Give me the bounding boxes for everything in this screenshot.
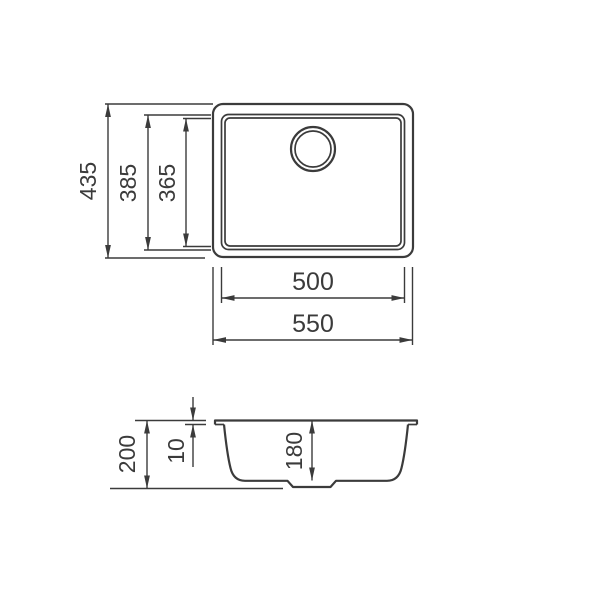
sink-dimension-drawing: 435 385 365 500 550 [0, 0, 600, 600]
technical-drawing-page: 435 385 365 500 550 [0, 0, 600, 600]
dim-label-overall-height: 435 [75, 162, 101, 200]
section-rim-top [215, 421, 417, 425]
section-bowl-profile [224, 425, 408, 488]
bowl-rim-inner-line [225, 118, 401, 246]
dim-label-rim-thickness: 10 [163, 438, 189, 464]
top-view: 435 385 365 500 550 [75, 104, 413, 345]
dim-label-overall-depth: 200 [114, 435, 140, 473]
bowl-rim-outer-line [222, 115, 405, 250]
dim-label-inner-width: 500 [292, 268, 334, 296]
dim-label-bowl-outer-height: 385 [115, 164, 141, 202]
drain-inner-circle [295, 131, 331, 167]
section-view: 200 10 180 [110, 397, 417, 489]
dim-label-overall-width: 550 [292, 310, 334, 338]
drain-outer-circle [291, 127, 335, 171]
dim-label-bowl-inner-height: 365 [154, 164, 180, 202]
dim-label-bowl-depth: 180 [281, 432, 307, 470]
